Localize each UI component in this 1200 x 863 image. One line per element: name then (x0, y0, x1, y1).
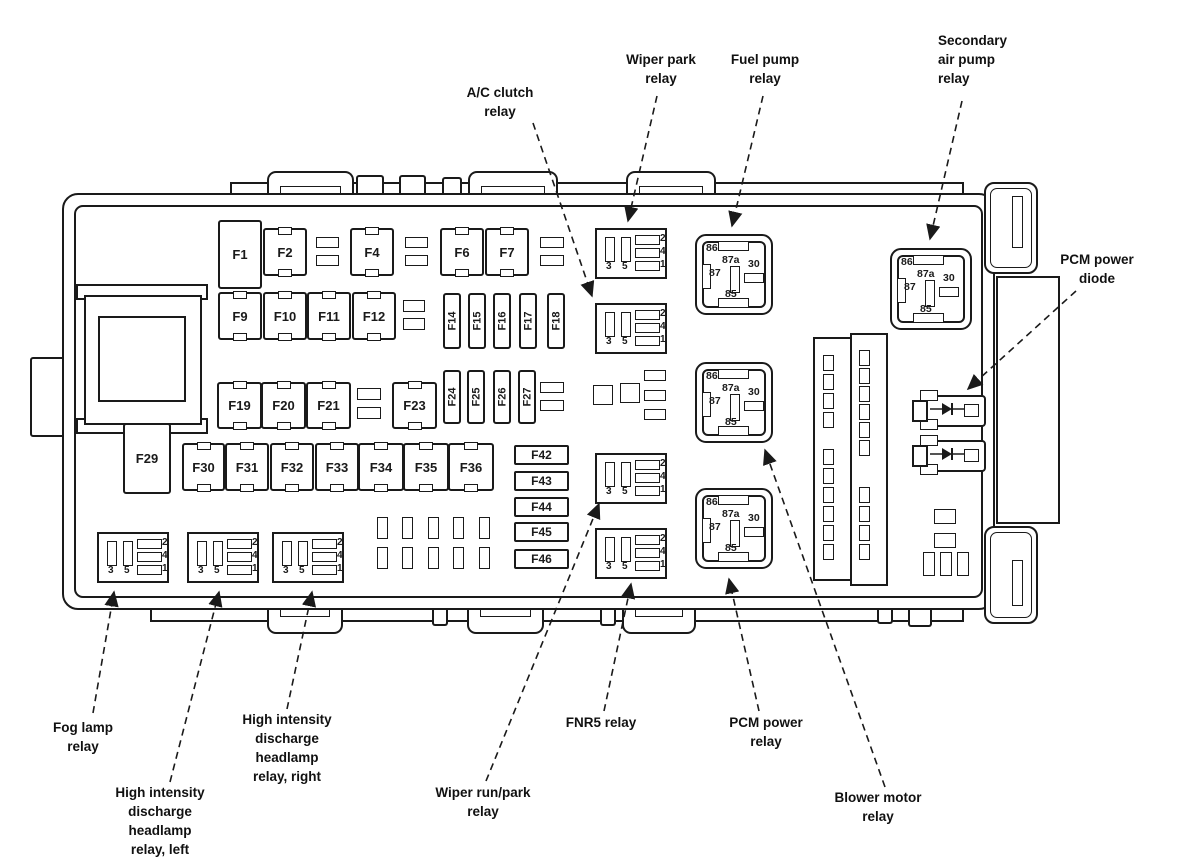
cap-slot (1012, 196, 1023, 248)
socket-pin-label: 4 (660, 472, 666, 482)
socket-pin-label: 1 (252, 564, 258, 574)
fuse-notch (240, 484, 254, 492)
relay-pin-label: 85 (725, 417, 737, 428)
relay-slot (744, 527, 764, 537)
cap-inner (990, 188, 1032, 268)
empty-slot (428, 517, 439, 539)
strip-slot (823, 525, 834, 541)
fuse-notch (464, 442, 478, 450)
empty-slot (540, 400, 564, 411)
socket-pin-label: 2 (660, 234, 666, 244)
strip-slot (859, 422, 870, 438)
fuse-F12: F12 (352, 292, 396, 340)
relay-pin-label: 86 (706, 371, 718, 382)
socket-slot (227, 539, 252, 549)
fuse-F4: F4 (350, 228, 394, 276)
fuse-F26: F26 (493, 370, 511, 424)
strip-slot (859, 404, 870, 420)
side-connector-bottom-cap (984, 526, 1038, 624)
socket-slot (635, 248, 660, 258)
fuse-F24: F24 (443, 370, 461, 424)
relay-slot (718, 495, 749, 505)
fuse-F6: F6 (440, 228, 484, 276)
fuse-label: F27 (521, 388, 533, 407)
fuse-label: F35 (415, 460, 437, 475)
label-fog-lamp-relay: Fog lamp relay (53, 718, 113, 756)
strip-slot (859, 350, 870, 366)
fuse-label: F7 (499, 245, 514, 260)
empty-slot (644, 390, 666, 401)
fuse-F2: F2 (263, 228, 307, 276)
socket-slot (635, 336, 660, 346)
socket-slot (635, 548, 660, 558)
strip-slot (823, 544, 834, 560)
empty-slot (377, 517, 388, 539)
fuse-label: F15 (471, 312, 483, 331)
socket-pin-label: 1 (660, 260, 666, 270)
hid-left-relay-socket: 35241 (187, 532, 259, 583)
label-fnr5-relay: FNR5 relay (566, 713, 637, 732)
fuse-F33: F33 (315, 443, 359, 491)
strip-slot (823, 393, 834, 409)
fuse-F14: F14 (443, 293, 461, 349)
fuse-label: F23 (403, 398, 425, 413)
cap-inner (990, 532, 1032, 618)
relay-pin-label: 87a (917, 269, 935, 280)
socket-slot (605, 462, 615, 487)
empty-slot (540, 255, 564, 266)
fuse-notch (240, 442, 254, 450)
fuse-F10: F10 (263, 292, 307, 340)
fuse-F19: F19 (217, 382, 262, 429)
fuse-F23: F23 (392, 382, 437, 429)
empty-slot (316, 237, 339, 248)
socket-slot (137, 539, 162, 549)
fuse-notch (408, 381, 422, 389)
socket-slot (605, 312, 615, 337)
fuse-label: F32 (281, 460, 303, 475)
relay-pin-label: 30 (748, 513, 760, 524)
fuse-notch (419, 442, 433, 450)
relay-pin-label: 87a (722, 255, 740, 266)
socket-pin-label: 1 (337, 564, 343, 574)
socket-pin-label: 2 (162, 538, 168, 548)
relay-slot (718, 241, 749, 251)
fuse-F34: F34 (358, 443, 404, 491)
fuel-pump-relay: 8687a873085 (695, 234, 773, 315)
fuse-notch (278, 227, 292, 235)
relay-slot (913, 255, 944, 265)
socket-slot (605, 537, 615, 562)
empty-slot (316, 255, 339, 266)
label-ac-clutch-relay: A/C clutch relay (467, 83, 534, 121)
label-pcm-power-diode: PCM power diode (1060, 250, 1134, 288)
empty-slot (540, 237, 564, 248)
strip-slot (823, 468, 834, 484)
fuse-label: F9 (232, 309, 247, 324)
connector-strip-2 (850, 333, 888, 586)
socket-pin-label: 3 (606, 337, 612, 347)
fuse-F25: F25 (467, 370, 485, 424)
socket-slot (635, 535, 660, 545)
fuse-F36: F36 (448, 443, 494, 491)
socket-slot (312, 552, 337, 562)
socket-pin-label: 5 (622, 487, 628, 497)
socket-pin-label: 2 (660, 459, 666, 469)
socket-slot (621, 537, 631, 562)
strip-slot (859, 440, 870, 456)
fuse-label: F29 (136, 451, 158, 466)
fuse-label: F19 (228, 398, 250, 413)
fuse-notch (455, 227, 469, 235)
socket-pin-label: 2 (660, 309, 666, 319)
fuse-box-diagram: F1F2F4F6F7F9F10F11F12F19F20F21F23F29F30F… (0, 0, 1200, 863)
fuse-label: F16 (496, 312, 508, 331)
socket-slot (605, 237, 615, 262)
empty-slot (620, 383, 640, 403)
relay-pin-label: 87 (904, 282, 916, 293)
relay-slot (744, 273, 764, 283)
fuse-notch (374, 442, 388, 450)
relay-pin-label: 85 (920, 304, 932, 315)
socket-pin-label: 3 (198, 566, 204, 576)
fuse-label: F45 (531, 525, 552, 539)
relay-slot (939, 287, 959, 297)
fuse-notch (464, 484, 478, 492)
fuse-label: F43 (531, 474, 552, 488)
socket-pin-label: 2 (252, 538, 258, 548)
side-connector-top-cap (984, 182, 1038, 274)
empty-slot (540, 382, 564, 393)
socket-pin-label: 3 (283, 566, 289, 576)
empty-slot (934, 509, 956, 524)
socket-slot (197, 541, 207, 566)
socket-pin-label: 5 (214, 566, 220, 576)
fuse-label: F18 (550, 312, 562, 331)
fuse-F35: F35 (403, 443, 449, 491)
empty-slot (357, 407, 381, 419)
relay-pin-label: 30 (943, 273, 955, 284)
socket-pin-label: 5 (622, 562, 628, 572)
hid-right-relay-socket: 35241 (272, 532, 344, 583)
diode-symbol (930, 401, 966, 417)
fuse-label: F34 (370, 460, 392, 475)
empty-slot (957, 552, 969, 576)
relay-slot (744, 401, 764, 411)
socket-slot (621, 462, 631, 487)
empty-slot (428, 547, 439, 569)
fuse-F21: F21 (306, 382, 351, 429)
fuse-label: F25 (470, 388, 482, 407)
strip-slot (823, 355, 834, 371)
fuse-label: F44 (531, 500, 552, 514)
socket-slot (107, 541, 117, 566)
fuse-notch (419, 484, 433, 492)
socket-slot (213, 541, 223, 566)
fog-lamp-relay-socket: 35241 (97, 532, 169, 583)
fuse-label: F10 (274, 309, 296, 324)
cap-slot (1012, 560, 1023, 606)
fuse-notch (365, 269, 379, 277)
fuse-F30: F30 (182, 443, 225, 491)
blower-motor-relay: 8687a873085 (695, 362, 773, 443)
socket-pin-label: 3 (606, 262, 612, 272)
fuse-label: F14 (446, 312, 458, 331)
label-hid-headlamp-relay-left: High intensity discharge headlamp relay,… (115, 783, 204, 859)
socket-pin-label: 5 (622, 262, 628, 272)
fuse-label: F11 (318, 309, 340, 324)
fuse-F17: F17 (519, 293, 537, 349)
socket-pin-label: 1 (162, 564, 168, 574)
fuse-notch (197, 484, 211, 492)
diode-pin (964, 449, 979, 462)
socket-slot (227, 552, 252, 562)
fuse-F16: F16 (493, 293, 511, 349)
fuse-F32: F32 (270, 443, 314, 491)
socket-slot (312, 565, 337, 575)
fuse-notch (330, 442, 344, 450)
socket-pin-label: 4 (660, 547, 666, 557)
fuse-F1: F1 (218, 220, 262, 289)
relay-pin-label: 87a (722, 383, 740, 394)
empty-slot (940, 552, 952, 576)
strip-slot (823, 412, 834, 428)
label-secondary-air-pump-relay: Secondary air pump relay (938, 31, 1007, 88)
fuse-notch (278, 333, 292, 341)
fuse-notch (285, 442, 299, 450)
socket-slot (635, 473, 660, 483)
fuse-F46: F46 (514, 549, 569, 569)
socket-pin-label: 5 (622, 337, 628, 347)
fuse-notch (500, 227, 514, 235)
relay-slot (718, 369, 749, 379)
fuse-F43: F43 (514, 471, 569, 491)
fuse-F7: F7 (485, 228, 529, 276)
empty-slot (377, 547, 388, 569)
socket-pin-label: 1 (660, 485, 666, 495)
label-wiper-run-park-relay: Wiper run/park relay (435, 783, 530, 821)
socket-pin-label: 3 (108, 566, 114, 576)
empty-slot (453, 547, 464, 569)
fuse-notch (322, 333, 336, 341)
label-wiper-park-relay: Wiper park relay (626, 50, 696, 88)
empty-slot (479, 547, 490, 569)
empty-slot (479, 517, 490, 539)
relay-pin-label: 87 (709, 396, 721, 407)
fuse-label: F1 (232, 247, 247, 262)
strip-slot (823, 506, 834, 522)
fuse-notch (233, 291, 247, 299)
fnr5-relay-socket: 35241 (595, 528, 667, 579)
fuse-box-contents: F1F2F4F6F7F9F10F11F12F19F20F21F23F29F30F… (0, 0, 1200, 863)
ac-clutch-relay-socket: 35241 (595, 303, 667, 354)
empty-slot (403, 318, 425, 330)
strip-slot (859, 386, 870, 402)
fuse-label: F24 (446, 388, 458, 407)
socket-slot (635, 486, 660, 496)
pcm-power-diode-1 (912, 392, 986, 428)
socket-slot (123, 541, 133, 566)
fuse-F11: F11 (307, 292, 351, 340)
relay-pin-label: 86 (901, 257, 913, 268)
diode-plug (912, 400, 928, 422)
empty-slot (923, 552, 935, 576)
secondary-air-pump-relay: 8687a873085 (890, 248, 972, 330)
fuse-label: F46 (531, 552, 552, 566)
fuse-F15: F15 (468, 293, 486, 349)
empty-slot (405, 237, 428, 248)
fuse-F29: F29 (123, 423, 171, 494)
fuse-notch (233, 422, 247, 430)
strip-slot (823, 487, 834, 503)
fuse-notch (367, 291, 381, 299)
fuse-notch (278, 291, 292, 299)
socket-slot (312, 539, 337, 549)
relay-pin-label: 87 (709, 268, 721, 279)
fuse-F27: F27 (518, 370, 536, 424)
pcm-power-diode-2 (912, 437, 986, 473)
fuse-label: F20 (272, 398, 294, 413)
fuse-notch (330, 484, 344, 492)
socket-slot (635, 460, 660, 470)
strip-slot (859, 506, 870, 522)
empty-slot (402, 517, 413, 539)
fuse-label: F42 (531, 448, 552, 462)
empty-slot (357, 388, 381, 400)
label-pcm-power-relay: PCM power relay (729, 713, 803, 751)
fuse-notch (322, 422, 336, 430)
strip-slot (823, 374, 834, 390)
socket-slot (227, 565, 252, 575)
relay-pin-label: 87 (709, 522, 721, 533)
relay-pin-label: 87a (722, 509, 740, 520)
fuse-label: F33 (326, 460, 348, 475)
socket-pin-label: 3 (606, 487, 612, 497)
diode-symbol (930, 446, 966, 462)
label-fuel-pump-relay: Fuel pump relay (731, 50, 799, 88)
socket-slot (621, 237, 631, 262)
relay-pin-label: 86 (706, 497, 718, 508)
fuse-F45: F45 (514, 522, 569, 542)
socket-pin-label: 2 (660, 534, 666, 544)
socket-slot (635, 261, 660, 271)
fuse-notch (322, 291, 336, 299)
socket-slot (137, 565, 162, 575)
socket-pin-label: 2 (337, 538, 343, 548)
main-connector-inner (98, 316, 186, 402)
fuse-F31: F31 (225, 443, 269, 491)
empty-slot (644, 409, 666, 420)
socket-pin-label: 4 (660, 247, 666, 257)
fuse-notch (365, 227, 379, 235)
empty-slot (934, 533, 956, 548)
socket-slot (282, 541, 292, 566)
fuse-notch (233, 333, 247, 341)
relay-pin-label: 85 (725, 543, 737, 554)
label-blower-motor-relay: Blower motor relay (834, 788, 921, 826)
wiper-run-park-relay-socket: 35241 (595, 453, 667, 504)
pcm-power-relay: 8687a873085 (695, 488, 773, 569)
relay-pin-label: 85 (725, 289, 737, 300)
strip-slot (859, 525, 870, 541)
socket-slot (635, 561, 660, 571)
fuse-notch (322, 381, 336, 389)
fuse-notch (285, 484, 299, 492)
fuse-notch (408, 422, 422, 430)
socket-pin-label: 5 (124, 566, 130, 576)
relay-pin-label: 30 (748, 259, 760, 270)
fuse-notch (367, 333, 381, 341)
empty-slot (453, 517, 464, 539)
label-hid-headlamp-relay-right: High intensity discharge headlamp relay,… (242, 710, 331, 786)
fuse-label: F31 (236, 460, 258, 475)
fuse-label: F12 (363, 309, 385, 324)
fuse-notch (500, 269, 514, 277)
diode-pin (964, 404, 979, 417)
empty-slot (644, 370, 666, 381)
fuse-notch (277, 422, 291, 430)
socket-pin-label: 5 (299, 566, 305, 576)
relay-pin-label: 86 (706, 243, 718, 254)
socket-slot (635, 323, 660, 333)
fuse-F18: F18 (547, 293, 565, 349)
socket-pin-label: 4 (162, 551, 168, 561)
socket-slot (298, 541, 308, 566)
fuse-notch (278, 269, 292, 277)
wiper-park-relay-socket: 35241 (595, 228, 667, 279)
fuse-F9: F9 (218, 292, 262, 340)
fuse-notch (455, 269, 469, 277)
socket-pin-label: 4 (252, 551, 258, 561)
socket-slot (635, 310, 660, 320)
strip-slot (859, 487, 870, 503)
socket-slot (137, 552, 162, 562)
strip-slot (859, 368, 870, 384)
fuse-label: F26 (496, 388, 508, 407)
fuse-label: F36 (460, 460, 482, 475)
fuse-F42: F42 (514, 445, 569, 465)
fuse-notch (233, 381, 247, 389)
fuse-notch (374, 484, 388, 492)
strip-slot (859, 544, 870, 560)
fuse-label: F17 (522, 312, 534, 331)
fuse-label: F2 (277, 245, 292, 260)
empty-slot (403, 300, 425, 312)
socket-slot (635, 235, 660, 245)
empty-slot (593, 385, 613, 405)
socket-slot (621, 312, 631, 337)
socket-pin-label: 4 (337, 551, 343, 561)
fuse-F44: F44 (514, 497, 569, 517)
socket-pin-label: 4 (660, 322, 666, 332)
fuse-notch (277, 381, 291, 389)
fuse-F20: F20 (261, 382, 306, 429)
socket-pin-label: 1 (660, 560, 666, 570)
fuse-label: F6 (454, 245, 469, 260)
empty-slot (402, 547, 413, 569)
fuse-label: F4 (364, 245, 379, 260)
fuse-label: F21 (317, 398, 339, 413)
socket-pin-label: 3 (606, 562, 612, 572)
strip-slot (823, 449, 834, 465)
relay-pin-label: 30 (748, 387, 760, 398)
socket-pin-label: 1 (660, 335, 666, 345)
fuse-label: F30 (192, 460, 214, 475)
empty-slot (405, 255, 428, 266)
fuse-notch (197, 442, 211, 450)
diode-plug (912, 445, 928, 467)
